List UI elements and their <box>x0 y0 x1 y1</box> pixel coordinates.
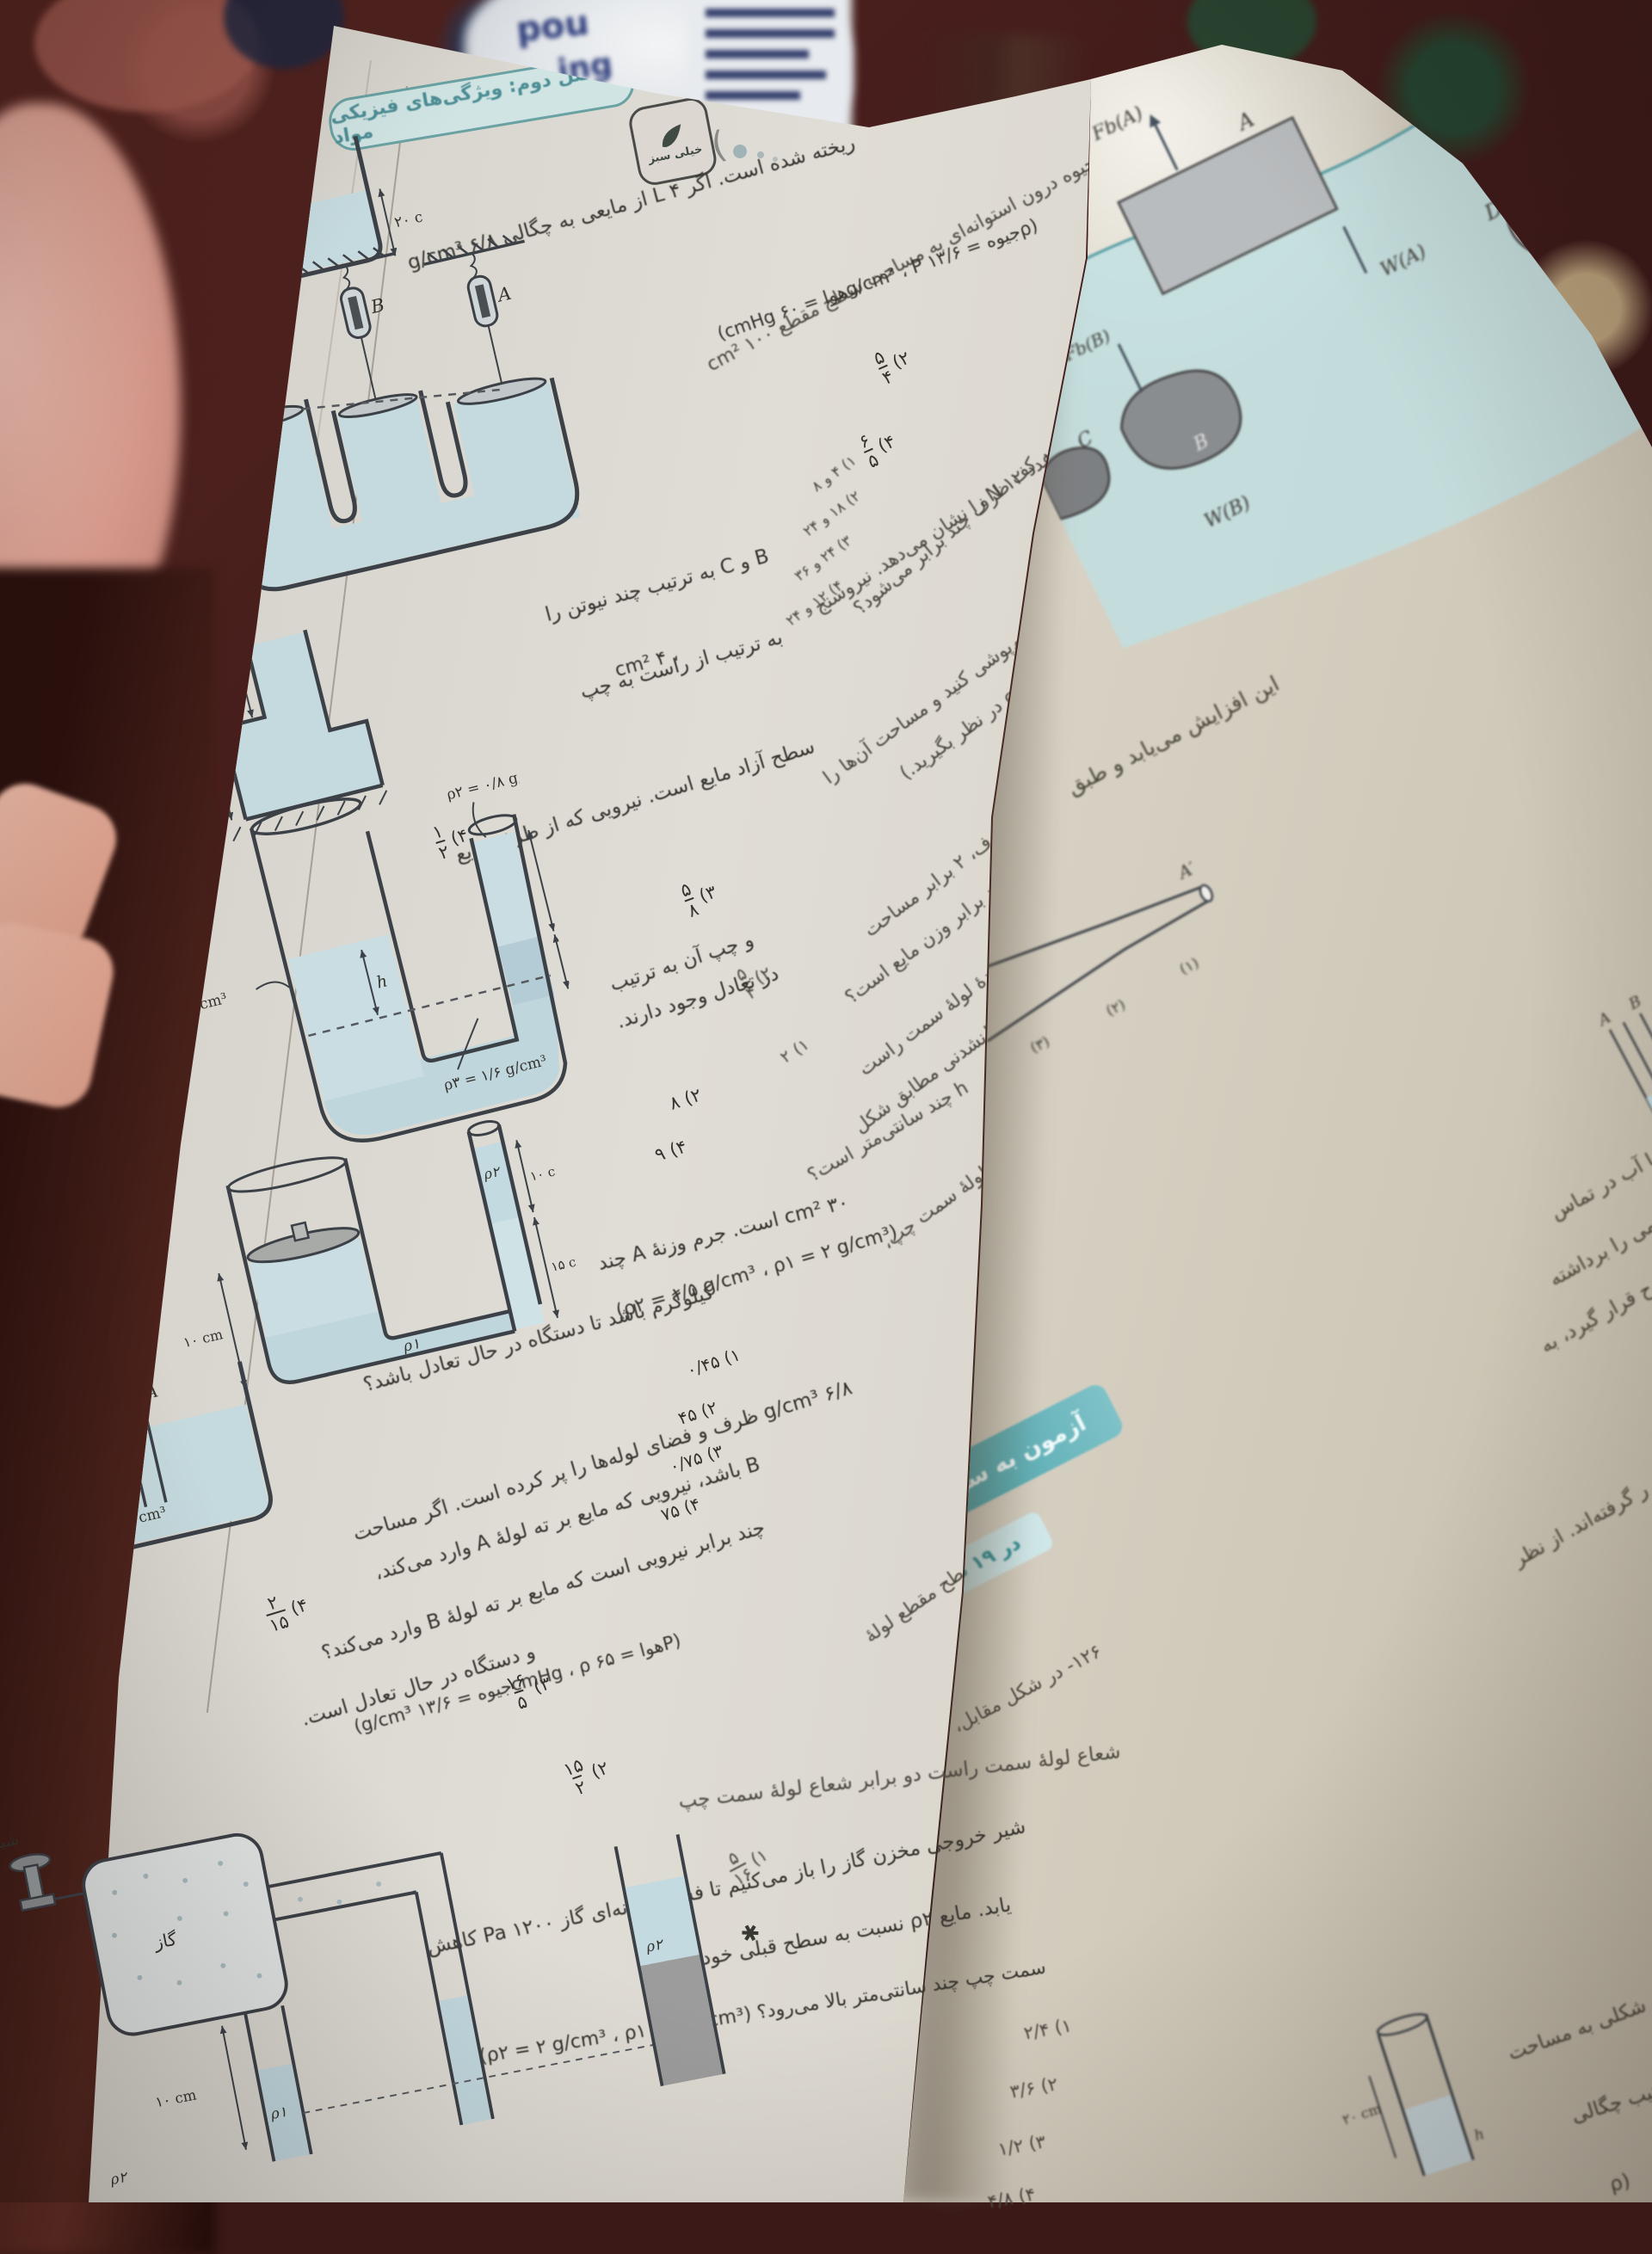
tube-b-label: B <box>1625 992 1644 1013</box>
option-value: ۲ <box>777 1046 795 1067</box>
a-prime-label: A′ <box>1174 857 1199 884</box>
package-line <box>706 91 800 100</box>
left-tube-liquid <box>288 934 425 1105</box>
fba-arrow <box>1153 120 1177 170</box>
option-label: ۴) <box>288 1594 311 1619</box>
mini-cylinder-figure: ۲۰ cm h <box>1316 1988 1522 2194</box>
right-fragment: (ρ <box>1607 2170 1633 2196</box>
p125-option-4: ۴) ۲۱۵ <box>261 1585 313 1635</box>
p120-option-4: ۴) ۶۵ <box>856 422 903 471</box>
p123-option-2: ۲) ۸ <box>667 1084 704 1113</box>
p125-line: چند برابر نیرویی است که مایع بر ته لولهٔ… <box>331 1517 767 1661</box>
option-label: ۱) <box>789 1035 812 1059</box>
frac-den: ۴ <box>878 365 896 388</box>
frac-den: ۵ <box>864 448 881 471</box>
cm12-label: ۱۲ cm <box>546 861 589 887</box>
p120-option-2: ۲) ۵۴ <box>871 338 917 388</box>
tube-opening <box>1198 884 1215 903</box>
tube-a-label: A <box>1594 1008 1614 1031</box>
fraction: ۱۶۵ <box>503 1670 534 1715</box>
arrowhead <box>1144 112 1161 128</box>
rho2b-label: ρ۲ <box>108 2169 130 2189</box>
right-fragment: ترتیب چگالی <box>1530 2075 1652 2140</box>
rho1-arrow <box>256 978 289 995</box>
pipe-liquid <box>439 1995 491 2124</box>
cm6-label: ۶ cm <box>566 945 601 969</box>
package-text: pou <box>515 3 591 51</box>
p122-option-3: ۳) ۵۸ <box>678 871 723 921</box>
h-label: h <box>1472 2126 1487 2145</box>
option-label: ۲) <box>889 347 913 373</box>
cm10-label: ۱۰ cm <box>154 2086 198 2110</box>
p123-option-4: ۴) ۹ <box>652 1136 689 1165</box>
cm6-arrow <box>554 934 568 988</box>
frac-den: ۱۵ <box>266 1609 291 1635</box>
p121-option-2: ۲) ۱۸ و ۲۴ <box>800 488 864 540</box>
package-line <box>706 71 826 79</box>
cylinder-top <box>1376 2010 1429 2039</box>
package-line <box>706 50 809 59</box>
cm10R-label: ۱۰ cm <box>528 1161 568 1184</box>
gas-tank <box>79 1831 291 2039</box>
frac-den: ۵ <box>514 1690 529 1713</box>
package-line <box>706 9 835 17</box>
a-label: A <box>1232 107 1258 136</box>
p120-formula: (ρجیوه = ۱۳/۶ g/cm³ ، Pهوا = ۶۰ cmHg) <box>684 215 1040 355</box>
rho1-label: ρ۱ <box>268 2103 288 2122</box>
abc-tubes-figure: A B C <box>1590 963 1652 1155</box>
scale-a-label: A <box>494 283 513 306</box>
option-label: ۳) <box>696 881 719 906</box>
valve <box>9 1846 85 1912</box>
frac-den: ۸ <box>685 897 701 921</box>
right-fragment: ی شکلی به مساحت <box>1484 1987 1652 2073</box>
p122-option-1: ۱)۲ <box>777 1035 812 1067</box>
tubes <box>1610 990 1652 1151</box>
cm10-arrow <box>222 2026 246 2150</box>
p121-line: به ترتیب از راست به چپ <box>447 626 785 740</box>
fraction: ۲۱۵ <box>261 1591 291 1635</box>
right-arm-liquid-gray <box>641 1955 723 2085</box>
rho2-label: ρ۲ = ۰/۸ g/cm³ <box>445 761 552 804</box>
p124-line: ۳۰ cm² است. جرم وزنهٔ A چند <box>558 1192 851 1285</box>
leaf-shape <box>659 124 685 148</box>
package-line <box>706 29 835 38</box>
p124-option-1: ۱) ۰/۴۵ <box>684 1344 743 1381</box>
right-fragment: ر گرفته‌اند. از نظر <box>1445 1479 1652 1607</box>
scale-b-label: B <box>368 294 386 317</box>
option-label: ۴) <box>874 430 898 456</box>
valve-label: شیر خروج <box>0 1831 21 1862</box>
cylinder-liquid <box>1404 2095 1471 2175</box>
decorative-dot <box>732 144 749 160</box>
tick-1: (۱) <box>1177 955 1202 979</box>
len-label: ۲۰ cm <box>1341 2100 1384 2128</box>
tick-2: (۲) <box>1104 996 1129 1020</box>
piston-knob <box>292 1222 309 1241</box>
gas-label: گاز <box>151 1929 178 1954</box>
tube-opening <box>467 1119 500 1138</box>
